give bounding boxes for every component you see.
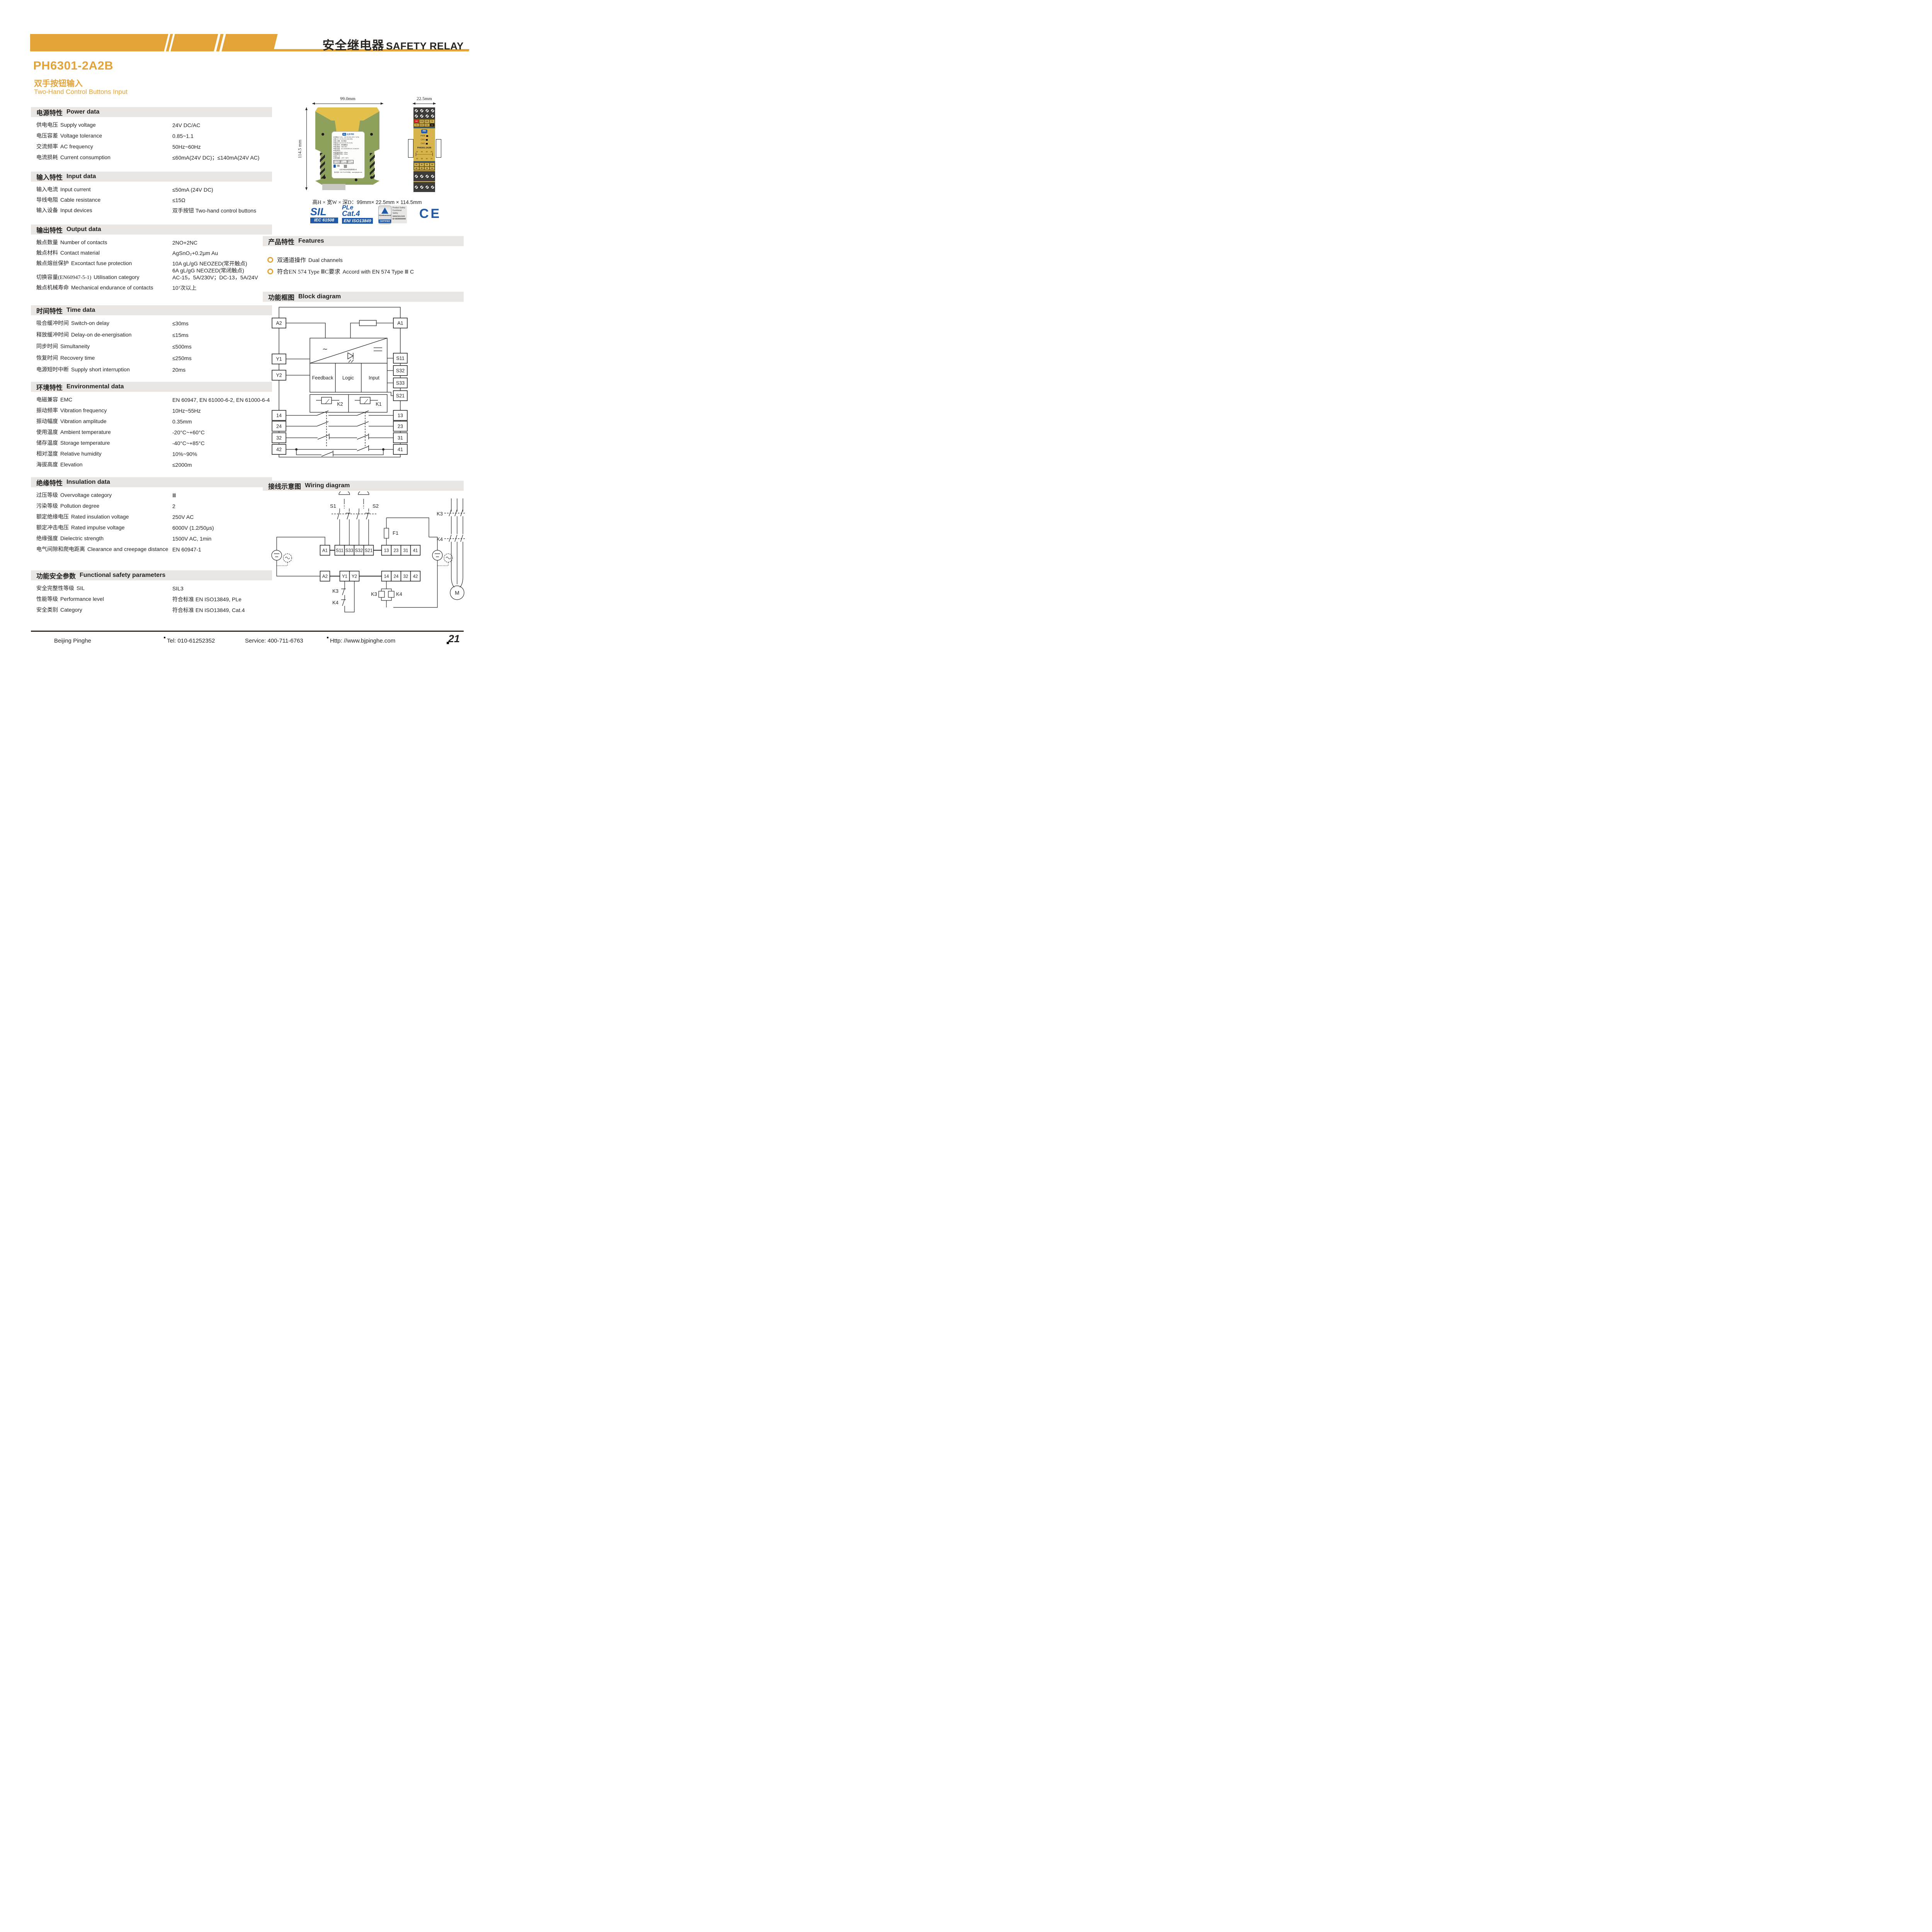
- terminal-label: A2: [276, 321, 282, 326]
- section-environmental-data: 环境特性 Environmental data 电磁兼容EMCEN 60947,…: [31, 382, 272, 472]
- wiring-diagram: S1 S2 F1 K3 K4 K3 K4 K3 K4 M A1S11S33S32…: [263, 492, 471, 625]
- spec-label: 输入电流Input current: [36, 186, 172, 194]
- label-line: ■ 触点容量：AC-15,5A/250V;DC-13,5A/24V: [333, 148, 363, 150]
- spec-value: -20°C~+60°C: [172, 429, 205, 436]
- section-title-zh: 功能安全参数: [36, 571, 76, 580]
- spec-row: 交流频率AC frequency50Hz~60Hz: [36, 143, 272, 154]
- ph-logo: PH: [421, 129, 427, 133]
- spec-value: 10%~90%: [172, 451, 197, 457]
- page-title: 安全继电器 SAFETY RELAY: [263, 36, 464, 53]
- section-header: 输入特性 Input data: [31, 172, 272, 182]
- svg-text:K4: K4: [396, 591, 402, 597]
- tuv-rheinland-badge: TÜVRheinland CERTIFIED Product Safety Fu…: [378, 206, 407, 223]
- spec-row: 恢复时间Recovery time≤250ms: [36, 355, 272, 366]
- led-icon: [426, 139, 428, 141]
- spec-label: 切换容量(EN60947-5-1)Utilisation category: [36, 274, 172, 281]
- spec-value: -40°C~+85°C: [172, 440, 205, 447]
- spec-row: 过压等级Overvoltage categoryⅢ: [36, 492, 272, 503]
- spec-label: 输入设备Input devices: [36, 207, 172, 214]
- screw-icon: [355, 179, 357, 181]
- section-title-en: Time data: [66, 307, 95, 314]
- spec-row: 额定绝缘电压Rated insulation voltage250V AC: [36, 514, 272, 524]
- spec-row: 海拔高度Elevation≤2000m: [36, 461, 272, 472]
- spec-row: 使用温度Ambient temperature-20°C~+60°C: [36, 429, 272, 440]
- section-header: 时间特性 Time data: [31, 305, 272, 315]
- section-title-zh: 时间特性: [36, 306, 63, 315]
- terminal-label: 32: [403, 575, 408, 579]
- spec-row: 性能等级Performance level符合标准 EN ISO13849, P…: [36, 596, 272, 607]
- spec-value: ≤250ms: [172, 355, 192, 362]
- terminal-label: 13: [384, 549, 389, 553]
- section-functional-safety: 功能安全参数 Functional safety parameters 安全完整…: [31, 570, 272, 617]
- spec-row: 触点数量Number of contacts2NO+2NC: [36, 239, 272, 250]
- spec-row: 供电电压Supply voltage24V DC/AC: [36, 122, 272, 133]
- terminal-label: S32: [396, 368, 405, 374]
- section-title-en: Wiring diagram: [305, 482, 350, 489]
- ple-cat4-logo: PLe Cat.4 EN/ ISO13849: [342, 205, 373, 224]
- banner-gold-segment: [30, 34, 168, 51]
- section-input-data: 输入特性 Input data 输入电流Input current≤50mA (…: [31, 172, 272, 218]
- spec-row: 电压容差Voltage tolerance0.85~1.1: [36, 133, 272, 143]
- spec-row: 电磁兼容EMCEN 60947, EN 61000-6-2, EN 61000-…: [36, 396, 272, 407]
- ce-mini-mark: CE: [337, 165, 340, 167]
- page-number: 21: [448, 633, 460, 645]
- mini-contact-bottom: 42321424: [413, 158, 435, 160]
- screw-icon: [370, 133, 373, 136]
- spec-value: 双手按钮 Two-hand control buttons: [172, 207, 256, 214]
- spec-value: 20ms: [172, 366, 185, 373]
- terminal-label: 31: [419, 163, 425, 167]
- feature-bullet-icon: [267, 269, 273, 274]
- led-ch2: CH2: [413, 143, 435, 145]
- svg-text:∼: ∼: [322, 345, 328, 353]
- section-title-zh: 输入特性: [36, 172, 63, 182]
- footer-bullet: [327, 637, 328, 638]
- tuv-badge-icon: TÜVRheinland CERTIFIED: [378, 206, 391, 224]
- terminal-label: 41: [414, 163, 419, 167]
- spec-label: 触点数量Number of contacts: [36, 239, 172, 247]
- section-title-zh: 接线示意图: [268, 481, 301, 491]
- spec-row: 污染等级Pollution degree2: [36, 503, 272, 514]
- header-banner: [30, 34, 281, 51]
- spec-label: 触点机械寿命Mechanical endurance of contacts: [36, 284, 172, 292]
- terminal-label: S11: [336, 549, 344, 553]
- spec-label: 海拔高度Elevation: [36, 461, 172, 469]
- svg-text:K4: K4: [332, 600, 338, 605]
- qr-code-icon: [344, 165, 347, 168]
- spec-label: 电源短时中断Supply short interruption: [36, 366, 172, 374]
- spec-label: 供电电压Supply voltage: [36, 122, 172, 129]
- spec-label: 电磁兼容EMC: [36, 396, 172, 404]
- cat4-text: Cat.4: [342, 211, 373, 218]
- section-header: 功能安全参数 Functional safety parameters: [31, 570, 272, 580]
- screw-icon: [323, 176, 326, 179]
- section-wiring-diagram: 接线示意图 Wiring diagram: [263, 481, 464, 491]
- section-title-en: Output data: [66, 226, 101, 233]
- section-title-en: Power data: [66, 109, 99, 116]
- terminal-label: 42: [276, 447, 282, 452]
- svg-text:Feedback: Feedback: [312, 375, 334, 381]
- spec-value: ≤500ms: [172, 343, 192, 350]
- spec-value: 符合标准 EN ISO13849, Cat.4: [172, 607, 245, 614]
- terminal-label: 31: [403, 549, 408, 553]
- terminal-label-table-top: A1S33S32Y2Y1S21S11A2: [413, 119, 435, 127]
- section-title-zh: 功能框图: [268, 292, 294, 302]
- spec-label: 绝缘强度Dielectric strength: [36, 535, 172, 543]
- terminal-label: A2: [322, 575, 328, 579]
- mini-contact-lines: [416, 153, 433, 156]
- section-header: 输出特性 Output data: [31, 224, 272, 235]
- spec-row: 电气间隙和爬电距离Clearance and creepage distance…: [36, 546, 272, 557]
- terminal-label: Y2: [352, 575, 357, 579]
- banner-gold-segment: [170, 34, 218, 51]
- dim-width-label: 99.0mm: [321, 96, 375, 101]
- terminal-label: 31: [398, 435, 403, 441]
- svg-text:K3: K3: [332, 588, 338, 594]
- svg-text:Logic: Logic: [342, 375, 354, 381]
- spec-label: 污染等级Pollution degree: [36, 503, 172, 510]
- spec-label: 恢复时间Recovery time: [36, 355, 172, 362]
- footer-rule: [31, 631, 464, 632]
- terminal-label: 13: [424, 163, 430, 167]
- spec-row: 振动频率Vibration frequency10Hz~55Hz: [36, 407, 272, 418]
- led-icon: [426, 135, 428, 137]
- section-features: 产品特性 Features: [263, 236, 464, 246]
- spec-row: 振动幅度Vibration amplitude0.35mm: [36, 418, 272, 429]
- spec-row: 电流损耗Current consumption≤60mA(24V DC)；≤14…: [36, 154, 272, 165]
- spec-label: 触点材料Contact material: [36, 250, 172, 257]
- spec-value: 符合标准 EN ISO13849, PLe: [172, 596, 241, 603]
- spec-row: 电源短时中断Supply short interruption20ms: [36, 366, 272, 378]
- spec-row: 触点机械寿命Mechanical endurance of contacts10…: [36, 284, 272, 295]
- svg-text:K3: K3: [437, 511, 443, 517]
- brand-name: 北京平和: [347, 133, 354, 136]
- terminal-label: A2: [430, 123, 435, 127]
- tuv-triangle-icon: [381, 207, 388, 214]
- terminal-label: 32: [419, 167, 425, 170]
- spec-value: ≤2000m: [172, 461, 192, 468]
- spec-label: 使用温度Ambient temperature: [36, 429, 172, 436]
- terminal-label: Y1: [414, 123, 419, 127]
- terminal-label: S33: [396, 381, 405, 386]
- spec-row: 切换容量(EN60947-5-1)Utilisation categoryAC-…: [36, 274, 272, 284]
- spec-label: 电流损耗Current consumption: [36, 154, 172, 162]
- terminal-label: 14: [384, 575, 389, 579]
- led-ch1: CH1: [413, 139, 435, 141]
- spec-label: 过压等级Overvoltage category: [36, 492, 172, 499]
- terminal-label: Y1: [276, 357, 282, 362]
- terminal-label: S33: [419, 119, 425, 123]
- spec-row: 同步时间Simultaneity≤500ms: [36, 343, 272, 355]
- spec-value: ≤15ms: [172, 332, 189, 338]
- dim-height-arrow: [306, 107, 307, 190]
- feature-item: 符合EN 574 Type ⅢC要求Accord with EN 574 Typ…: [267, 267, 461, 276]
- svg-text:K3: K3: [371, 591, 377, 597]
- spec-value: 10A gL/gG NEOZED(常开触点) 6A gL/gG NEOZED(常…: [172, 260, 247, 274]
- section-power-data: 电源特性 Power data 供电电压Supply voltage24V DC…: [31, 107, 272, 165]
- terminal-block: [413, 182, 435, 192]
- dim-height-label: 114.5 mm: [297, 139, 303, 158]
- svg-text:F1: F1: [393, 530, 398, 536]
- spec-row: 触点材料Contact materialAgSnO₂+0.2μm Au: [36, 250, 272, 260]
- spec-label: 振动幅度Vibration amplitude: [36, 418, 172, 425]
- section-title-en: Environmental data: [66, 383, 124, 390]
- vent-slots: [320, 153, 325, 179]
- tuv-brand: TÜVRheinland: [379, 214, 391, 216]
- spec-row: 额定冲击电压Rated impulse voltage6000V (1.2/50…: [36, 524, 272, 535]
- terminal-label: S11: [396, 356, 404, 361]
- spec-value: 10Hz~55Hz: [172, 407, 201, 414]
- section-title-zh: 电源特性: [36, 107, 63, 117]
- spec-label: 额定绝缘电压Rated insulation voltage: [36, 514, 172, 521]
- svg-text:Input: Input: [369, 375, 379, 381]
- ce-mark: CE: [419, 206, 441, 221]
- sil-standard: IEC 61508: [310, 218, 338, 223]
- support-line: 技术支持：400-711-6763 网址：www.bjpinghe.com: [333, 171, 363, 173]
- terminal-label: 41: [413, 549, 418, 553]
- vent-slots: [370, 153, 375, 179]
- section-title-en: Insulation data: [66, 479, 110, 486]
- spec-value: 24V DC/AC: [172, 122, 200, 129]
- screw-icon: [370, 176, 373, 179]
- spec-value: SIL3: [172, 585, 184, 592]
- spec-value: 0.85~1.1: [172, 133, 194, 139]
- section-time-data: 时间特性 Time data 吸合缓冲时间Switch-on delay≤30m…: [31, 305, 272, 378]
- spec-label: 性能等级Performance level: [36, 596, 172, 603]
- module-side-label: PH 北京平和 ■ 电源(A1+,A2-)：24V DC/AC(-15%~+10…: [332, 131, 365, 179]
- spec-label: 安全类别Category: [36, 607, 172, 614]
- terminal-label: 14: [430, 163, 435, 167]
- footer-bullet: [164, 637, 165, 638]
- terminal-label: 24: [394, 575, 399, 579]
- footer-service: Service: 400-711-6763: [245, 638, 303, 644]
- terminal-label: S32: [424, 119, 430, 123]
- spec-value: ≤15Ω: [172, 197, 185, 204]
- section-title-zh: 绝缘特性: [36, 478, 63, 487]
- spec-value: 1500V AC, 1min: [172, 535, 211, 542]
- sil-logo: SIL IEC 61508: [310, 207, 338, 223]
- screw-icon: [321, 133, 324, 136]
- svg-text:S1: S1: [330, 503, 336, 509]
- title-en: SAFETY RELAY: [386, 40, 464, 52]
- din-clip-ear: [408, 139, 413, 158]
- svg-text:K4: K4: [437, 536, 443, 542]
- label-line: ■ 使用温度：-20℃~+60℃: [333, 157, 363, 159]
- spec-value: ≤30ms: [172, 320, 189, 327]
- terminal-label: Y2: [430, 119, 435, 123]
- section-title-zh: 输出特性: [36, 225, 63, 235]
- spec-row: 导线电阻Cable resistance≤15Ω: [36, 197, 272, 207]
- svg-text:S2: S2: [372, 503, 379, 509]
- section-title-en: Functional safety parameters: [80, 572, 165, 579]
- spec-label: 相对湿度Relative humidity: [36, 451, 172, 458]
- terminal-block: [413, 107, 435, 119]
- svg-text:M: M: [455, 590, 459, 596]
- spec-value: 2NO+2NC: [172, 239, 197, 246]
- block-diagram: ∼ Feedback Logic Input K2 K1 A2Y1Y214243…: [264, 303, 434, 465]
- spec-row: 释放缓冲时间Delay-on de-energisation≤15ms: [36, 332, 272, 343]
- terminal-label: S32: [355, 549, 363, 553]
- spec-label: 电气间隙和爬电距离Clearance and creepage distance: [36, 546, 172, 553]
- company-name: 北京平和创业科技发展有限公司: [333, 168, 363, 170]
- spec-value: 6000V (1.2/50μs): [172, 524, 214, 531]
- spec-value: EN 60947, EN 61000-6-2, EN 61000-6-4: [172, 396, 270, 403]
- footer-website: Http: //www.bjpinghe.com: [330, 638, 395, 644]
- spec-value: 0.35mm: [172, 418, 192, 425]
- dim-width-arrow: [312, 104, 383, 104]
- spec-value: AC-15，5A/230V；DC-13，5A/24V: [172, 274, 258, 281]
- terminal-label: 24: [276, 424, 282, 429]
- product-subtitle-en: Two-Hand Control Buttons Input: [34, 88, 128, 96]
- ple-standard: EN/ ISO13849: [342, 218, 373, 224]
- section-block-diagram: 功能框图 Block diagram: [263, 292, 464, 302]
- terminal-label: 13: [398, 413, 403, 418]
- spec-value: ≤50mA (24V DC): [172, 186, 213, 193]
- spec-label: 振动频率Vibration frequency: [36, 407, 172, 415]
- din-clip-ear: [436, 139, 441, 158]
- feature-bullet-icon: [267, 257, 273, 263]
- spec-value: Ⅲ: [172, 492, 176, 499]
- terminal-label: 14: [276, 413, 282, 418]
- terminal-label: S21: [365, 549, 372, 553]
- spec-row: 安全类别Category符合标准 EN ISO13849, Cat.4: [36, 607, 272, 617]
- terminal-label: S33: [345, 549, 353, 553]
- datasheet-page: 安全继电器 SAFETY RELAY PH6301-2A2B 双手按钮输入 Tw…: [0, 0, 493, 664]
- spec-label: 吸合缓冲时间Switch-on delay: [36, 320, 172, 327]
- spec-label: 交流频率AC frequency: [36, 143, 172, 151]
- tuv-side-panel: Product Safety Functional Safety www.tuv…: [391, 206, 407, 223]
- section-output-data: 输出特性 Output data 触点数量Number of contacts2…: [31, 224, 272, 295]
- terminal-label: 24: [430, 167, 435, 170]
- section-header: 绝缘特性 Insulation data: [31, 477, 272, 487]
- tuv-mini-icon: [333, 165, 336, 168]
- terminal-label: Y2: [276, 373, 282, 378]
- module-side-view: PH 北京平和 ■ 电源(A1+,A2-)：24V DC/AC(-15%~+10…: [311, 107, 383, 191]
- product-subtitle-zh: 双手按钮输入: [34, 77, 83, 89]
- footer-company: Beijing Pinghe: [54, 638, 91, 644]
- section-title-en: Block diagram: [298, 293, 341, 300]
- terminal-label: 23: [424, 167, 430, 170]
- terminal-label: A1: [397, 321, 403, 326]
- section-header: 环境特性 Environmental data: [31, 382, 272, 392]
- dim-front-width-arrow: [413, 104, 436, 104]
- footer-tel: Tel: 010-61252352: [167, 638, 215, 644]
- spec-label: 释放缓冲时间Delay-on de-energisation: [36, 332, 172, 339]
- spec-label: 同步时间Simultaneity: [36, 343, 172, 350]
- spec-label: 触点熔丝保护Excontact fuse protection: [36, 260, 172, 267]
- tuv-certified: CERTIFIED: [379, 219, 391, 223]
- spec-value: 250V AC: [172, 514, 194, 520]
- din-rail-foot: [322, 184, 345, 190]
- led-icon: [426, 143, 428, 145]
- product-model: PH6301-2A2B: [33, 59, 113, 73]
- svg-text:K1: K1: [376, 401, 381, 407]
- terminal-label: A1: [414, 119, 419, 123]
- terminal-label: 42: [413, 575, 418, 579]
- spec-value: 2: [172, 503, 175, 510]
- section-header: 电源特性 Power data: [31, 107, 272, 117]
- spec-label: 额定冲击电压Rated impulse voltage: [36, 524, 172, 532]
- terminal-label: Y1: [342, 575, 347, 579]
- spec-row: 触点熔丝保护Excontact fuse protection10A gL/gG…: [36, 260, 272, 274]
- spec-row: 输入设备Input devices双手按钮 Two-hand control b…: [36, 207, 272, 218]
- spec-value: ≤60mA(24V DC)；≤140mA(24V AC): [172, 154, 259, 161]
- terminal-label: A1: [322, 549, 328, 553]
- section-insulation-data: 绝缘特性 Insulation data 过压等级Overvoltage cat…: [31, 477, 272, 557]
- led-pwr: PWR: [413, 135, 435, 137]
- spec-row: 安全完整性等级SILSIL3: [36, 585, 272, 596]
- spec-row: 绝缘强度Dielectric strength1500V AC, 1min: [36, 535, 272, 546]
- spec-row: 吸合缓冲时间Switch-on delay≤30ms: [36, 320, 272, 332]
- spec-row: 输入电流Input current≤50mA (24V DC): [36, 186, 272, 197]
- terminal-label: S11: [424, 123, 430, 127]
- spec-label: 安全完整性等级SIL: [36, 585, 172, 592]
- section-title-en: Features: [298, 238, 324, 245]
- front-model-text: PH6301-2A2B: [413, 147, 435, 149]
- blue-strip: [413, 127, 435, 128]
- sil-text: SIL: [310, 207, 338, 217]
- svg-text:K2: K2: [337, 401, 343, 407]
- spec-value: EN 60947-1: [172, 546, 201, 553]
- section-title-en: Input data: [66, 173, 96, 180]
- spec-value: AgSnO₂+0.2μm Au: [172, 250, 218, 257]
- dim-front-width-label: 22.5mm: [409, 96, 440, 101]
- terminal-label: 41: [398, 447, 403, 452]
- spec-label: 电压容差Voltage tolerance: [36, 133, 172, 140]
- terminal-label: 42: [414, 167, 419, 170]
- spec-row: 相对湿度Relative humidity10%~90%: [36, 451, 272, 461]
- ph-logo: PH: [342, 133, 346, 136]
- dimension-caption: 高H × 宽W × 深D：99mm× 22.5mm × 114.5mm: [294, 198, 440, 206]
- section-title-zh: 产品特性: [268, 236, 294, 246]
- module-front-view: A1S33S32Y2Y1S21S11A2 PH PWR CH1 CH2 PH63…: [413, 107, 435, 190]
- spec-value: 50Hz~60Hz: [172, 143, 201, 150]
- title-zh: 安全继电器: [322, 39, 384, 52]
- terminal-label-table-bottom: 4131131442322324: [413, 162, 435, 170]
- terminal-label: 32: [276, 435, 282, 441]
- terminal-label: S21: [419, 123, 425, 127]
- spec-row: 储存温度Storage temperature-40°C~+85°C: [36, 440, 272, 451]
- spec-value: 10⁷次以上: [172, 284, 197, 291]
- terminal-label: 23: [394, 549, 399, 553]
- terminal-label: S21: [396, 393, 405, 399]
- feature-item: 双通道操作Dual channels: [267, 256, 461, 264]
- terminal-block: [413, 171, 435, 181]
- spec-label: 导线电阻Cable resistance: [36, 197, 172, 204]
- section-title-zh: 环境特性: [36, 382, 63, 392]
- terminal-label: 23: [398, 424, 403, 429]
- spec-label: 储存温度Storage temperature: [36, 440, 172, 447]
